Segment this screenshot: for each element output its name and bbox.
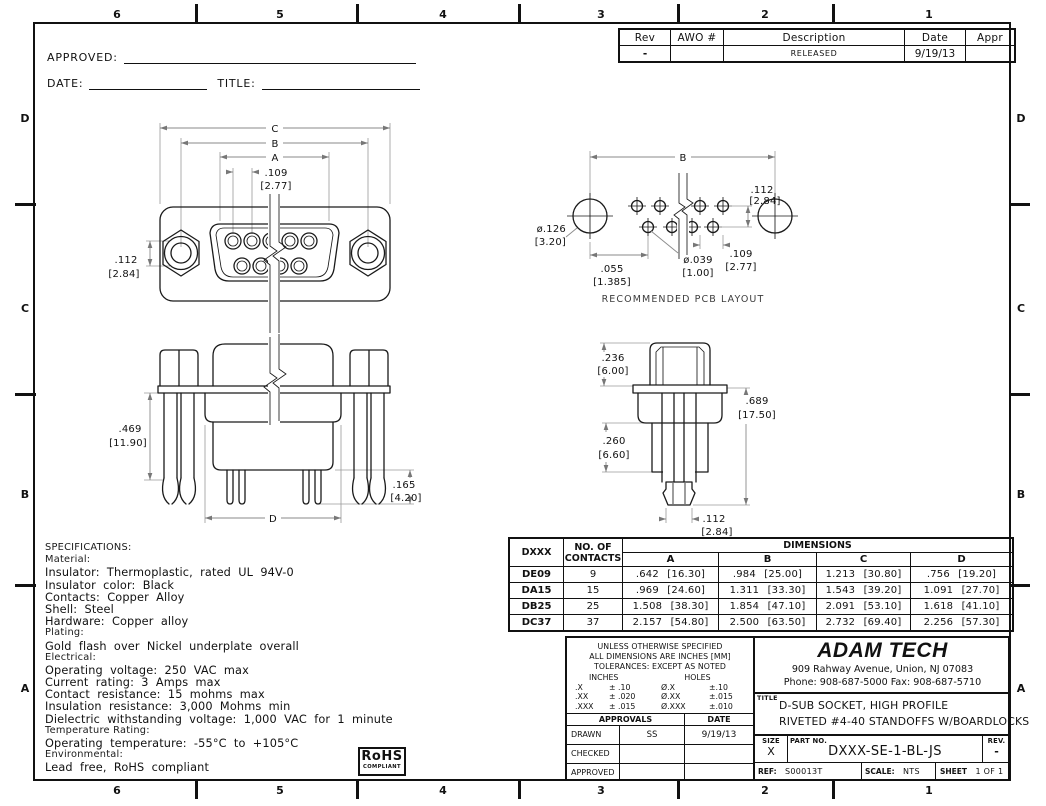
t-cell: ±.015 [709, 692, 755, 702]
pcb-caption: RECOMMENDED PCB LAYOUT [602, 294, 765, 305]
dim-label-pitch: .109 [729, 249, 752, 260]
dim-label-offset: .055 [600, 264, 623, 275]
date-header: Date [905, 29, 966, 46]
dim-label-offset-mm: [1.385] [593, 277, 631, 288]
solder-pins [227, 470, 321, 504]
approval-role: CHECKED [567, 745, 620, 763]
tolerance-approvals-section: UNLESS OTHERWISE SPECIFIED ALL DIMENSION… [567, 638, 755, 779]
contacts-cell: 25 [564, 599, 623, 615]
approval-row: DRAWN SS 9/19/13 [567, 726, 753, 745]
dim-b-cell: 2.500 [63.50] [719, 615, 817, 632]
contacts-cell: 9 [564, 567, 623, 583]
model-cell: DA15 [509, 583, 564, 599]
ref-value: S00013T [785, 767, 823, 776]
contacts-cell: 15 [564, 583, 623, 599]
approval-name: SS [620, 726, 685, 744]
dim-label-pitch: .109 [264, 168, 287, 179]
contacts-column-header: NO. OF CONTACTS [564, 538, 623, 567]
approval-role: APPROVED [567, 764, 620, 779]
dimensions-group-header: DIMENSIONS [623, 538, 1014, 553]
rev-value: - [983, 745, 1010, 758]
title-cell-label: TITLE [757, 695, 778, 702]
awo-value [671, 46, 724, 63]
part-number-value: DXXX-SE-1-BL-JS [788, 745, 982, 759]
specifications-block: SPECIFICATIONS: Material: Insulator: The… [45, 542, 475, 774]
company-title-section: ADAM TECH 909 Rahway Avenue, Union, NJ 0… [755, 638, 1010, 779]
t-cell: .XXX [575, 702, 609, 712]
model-cell: DB25 [509, 599, 564, 615]
dim-label-mount-dia-mm: [3.20] [535, 237, 566, 248]
drawing-sheet: 6 5 4 3 2 1 6 5 4 3 2 1 D C B A D C B A [0, 0, 1046, 806]
rev-value: - [619, 46, 671, 63]
table-row: DA15 15 .969 [24.60] 1.311 [33.30] 1.543… [509, 583, 1013, 599]
company-address: 909 Rahway Avenue, Union, NJ 07083 [755, 663, 1010, 676]
approval-row: APPROVED [567, 764, 753, 779]
dim-d-cell: .756 [19.20] [911, 567, 1014, 583]
bottom-view: .469 [11.90] .165 [4.20] D [109, 334, 422, 525]
t-cell: Ø.XXX [661, 702, 709, 712]
spec-line: Hardware: Copper alloy [45, 615, 475, 627]
rohs-logo: RoHS COMPLIANT [358, 747, 406, 776]
rev-header: Rev [619, 29, 671, 46]
table-row: DE09 9 .642 [16.30] .984 [25.00] 1.213 [… [509, 567, 1013, 583]
date-label: DATE: [47, 77, 83, 90]
dim-label-row-mm: [2.84] [108, 269, 139, 280]
approval-row: CHECKED [567, 745, 753, 764]
dim-label-row: .112 [114, 255, 137, 266]
dim-label-row: .112 [750, 185, 773, 196]
scale-cell: SCALE: NTS [862, 763, 936, 779]
spec-line: Contact resistance: 15 mohms max [45, 688, 475, 700]
signoff-block: APPROVED: DATE: TITLE: [47, 38, 427, 90]
dim-label-top-mm: [6.00] [597, 366, 628, 377]
spec-line: Temperature Rating: [45, 725, 475, 737]
spec-line: Contacts: Copper Alloy [45, 591, 475, 603]
approval-date [685, 764, 753, 779]
dim-c-cell: 1.543 [39.20] [817, 583, 911, 599]
dim-b-cell: 1.311 [33.30] [719, 583, 817, 599]
dim-d-cell: 2.256 [57.30] [911, 615, 1014, 632]
dim-c-cell: 2.091 [53.10] [817, 599, 911, 615]
title-label: TITLE: [217, 77, 255, 90]
dim-b-cell: 1.854 [47.10] [719, 599, 817, 615]
drawing-title-line1: D-SUB SOCKET, HIGH PROFILE [755, 694, 1010, 712]
t-cell: .X [575, 683, 609, 693]
model-cell: DE09 [509, 567, 564, 583]
drawing-title-line2: RIVETED #4-40 STANDOFFS W/BOARDLOCKS [755, 712, 1010, 728]
spec-line: Plating: [45, 627, 475, 639]
table-row: DB25 25 1.508 [38.30] 1.854 [47.10] 2.09… [509, 599, 1013, 615]
approvals-date-header: DATE [685, 714, 753, 725]
holes-header: HOLES [684, 673, 710, 683]
drawing-title-cell: TITLE D-SUB SOCKET, HIGH PROFILE RIVETED… [755, 694, 1010, 736]
title-line [262, 75, 420, 90]
dim-c-header: C [817, 553, 911, 567]
spec-line: SPECIFICATIONS: [45, 542, 475, 554]
t-cell: Ø.XX [661, 692, 709, 702]
ref-scale-sheet-row: REF: S00013T SCALE: NTS SHEET 1 OF 1 [755, 763, 1010, 779]
spec-line: Insulator: Thermoplastic, rated UL 94V-0 [45, 566, 475, 578]
dim-label-pin-mm: [4.20] [390, 493, 421, 504]
inches-header: INCHES [589, 673, 618, 683]
t-cell: ± .020 [609, 692, 661, 702]
title-block: UNLESS OTHERWISE SPECIFIED ALL DIMENSION… [565, 636, 1010, 781]
spec-line: Insulator color: Black [45, 579, 475, 591]
dimensions-table: DXXX NO. OF CONTACTS DIMENSIONS A B C D … [508, 537, 1014, 632]
dim-label-row-mm: [2.84] [749, 196, 780, 207]
approved-line [124, 49, 416, 64]
dim-label-a: A [271, 153, 278, 164]
appr-header: Appr [966, 29, 1016, 46]
spec-line: Operating voltage: 250 VAC max [45, 664, 475, 676]
front-view: C B A .109 [2.77] .112 [2.84] [108, 121, 390, 333]
model-cell: DC37 [509, 615, 564, 632]
boardlock-claws [163, 478, 196, 504]
spec-line: Dielectric withstanding voltage: 1,000 V… [45, 713, 475, 725]
date-value: 9/19/13 [905, 46, 966, 63]
model-column-header: DXXX [509, 538, 564, 567]
size-part-rev-row: SIZE X PART NO. DXXX-SE-1-BL-JS REV. - [755, 736, 1010, 763]
company-block: ADAM TECH 909 Rahway Avenue, Union, NJ 0… [755, 638, 1010, 694]
date-line [89, 75, 207, 90]
dim-d-cell: 1.618 [41.10] [911, 599, 1014, 615]
spec-line: Lead free, RoHS compliant [45, 761, 475, 773]
dim-label-b: B [271, 139, 278, 150]
note-line: ALL DIMENSIONS ARE INCHES [MM] [567, 652, 753, 662]
note-line: UNLESS OTHERWISE SPECIFIED [567, 642, 753, 652]
dim-label-hole-dia-mm: [1.00] [682, 268, 713, 279]
sheet-label: SHEET [940, 767, 967, 776]
spec-line: Current rating: 3 Amps max [45, 676, 475, 688]
dim-label-mid-mm: [6.60] [598, 450, 629, 461]
dim-label-d: D [269, 514, 277, 525]
spec-line: Operating temperature: -55°C to +105°C [45, 737, 475, 749]
approval-date: 9/19/13 [685, 726, 753, 744]
dim-a-cell: .969 [24.60] [623, 583, 719, 599]
contacts-cell: 37 [564, 615, 623, 632]
approvals-header: APPROVALS [567, 714, 685, 725]
dim-c-cell: 2.732 [69.40] [817, 615, 911, 632]
approval-name [620, 764, 685, 779]
ref-cell: REF: S00013T [755, 763, 862, 779]
dim-label-pitch-mm: [2.77] [725, 262, 756, 273]
t-cell: ±.010 [709, 702, 755, 712]
approval-date [685, 745, 753, 763]
dim-label-pitch-mm: [2.77] [260, 181, 291, 192]
rohs-text: RoHS [360, 749, 404, 764]
dim-a-cell: 2.157 [54.80] [623, 615, 719, 632]
size-label: SIZE [755, 736, 787, 745]
t-cell: ±.10 [709, 683, 755, 693]
scale-value: NTS [903, 767, 920, 776]
scale-label: SCALE: [865, 767, 895, 776]
part-number-cell: PART NO. DXXX-SE-1-BL-JS [788, 736, 982, 762]
dim-label-top: .236 [601, 353, 624, 364]
pcb-layout-view: B ø.126 [3.20] .055 [1.385] [535, 150, 798, 305]
dim-label-overall-mm: [17.50] [738, 410, 776, 421]
contacts-header-line2: CONTACTS [564, 553, 622, 564]
dim-label-height-mm: [11.90] [109, 438, 147, 449]
dim-label-hole-dia: ø.039 [683, 255, 712, 266]
appr-value [966, 46, 1016, 63]
spec-line: Gold flash over Nickel underplate overal… [45, 640, 475, 652]
dim-label-mount-dia: ø.126 [537, 224, 566, 235]
company-phone: Phone: 908-687-5000 Fax: 908-687-5710 [755, 676, 1010, 689]
approval-name [620, 745, 685, 763]
dim-d-cell: 1.091 [27.70] [911, 583, 1014, 599]
t-cell: Ø.X [661, 683, 709, 693]
boardlock-tip [663, 482, 695, 505]
dim-b-cell: .984 [25.00] [719, 567, 817, 583]
description-header: Description [724, 29, 905, 46]
spec-line: Material: [45, 554, 475, 566]
dim-label-tip: .112 [702, 514, 725, 525]
spec-line: Insulation resistance: 3,000 Mohms min [45, 700, 475, 712]
approval-role: DRAWN [567, 726, 620, 744]
tolerance-grid: .X ± .10 Ø.X ±.10 .XX ± .020 Ø.XX ±.015 … [575, 683, 753, 712]
dim-label-overall: .689 [745, 396, 768, 407]
spec-line: Electrical: [45, 652, 475, 664]
company-logo-text: ADAM TECH [755, 638, 1010, 663]
dim-a-header: A [623, 553, 719, 567]
spec-line: Environmental: [45, 749, 475, 761]
awo-header: AWO # [671, 29, 724, 46]
dim-c-cell: 1.213 [30.80] [817, 567, 911, 583]
t-cell: ± .10 [609, 683, 661, 693]
dim-label-mid: .260 [602, 436, 625, 447]
dim-label-c: C [271, 124, 278, 135]
sheet-value: 1 OF 1 [975, 767, 1003, 776]
rohs-compliant-text: COMPLIANT [360, 764, 404, 771]
side-view: .236 [6.00] .689 [17.50] .260 [6.60] .11… [597, 343, 776, 538]
approved-label: APPROVED: [47, 51, 118, 64]
description-value: RELEASED [724, 46, 905, 63]
tolerance-note: UNLESS OTHERWISE SPECIFIED ALL DIMENSION… [567, 638, 753, 714]
revision-table: Rev AWO # Description Date Appr - RELEAS… [618, 28, 1016, 63]
t-cell: ± .015 [609, 702, 661, 712]
table-row: DC37 37 2.157 [54.80] 2.500 [63.50] 2.73… [509, 615, 1013, 632]
note-line: TOLERANCES: EXCEPT AS NOTED [567, 662, 753, 672]
ref-label: REF: [758, 767, 777, 776]
dim-b-header: B [719, 553, 817, 567]
dim-label-pin: .165 [392, 480, 415, 491]
dim-a-cell: .642 [16.30] [623, 567, 719, 583]
t-cell: .XX [575, 692, 609, 702]
dim-a-cell: 1.508 [38.30] [623, 599, 719, 615]
sheet-cell: SHEET 1 OF 1 [936, 763, 1010, 779]
dim-d-header: D [911, 553, 1014, 567]
size-value: X [755, 745, 787, 758]
rev-label: REV. [983, 736, 1010, 745]
contacts-header-line1: NO. OF [564, 542, 622, 553]
spec-line: Shell: Steel [45, 603, 475, 615]
dim-label-b: B [679, 153, 686, 164]
dim-label-height: .469 [118, 424, 141, 435]
boardlock-claws [353, 478, 386, 504]
rev-cell: REV. - [982, 736, 1010, 762]
size-cell: SIZE X [755, 736, 788, 762]
